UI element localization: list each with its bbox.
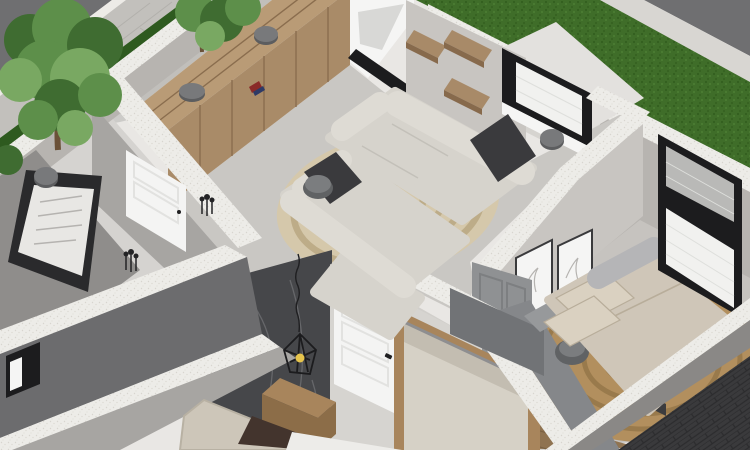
- tree-canopy: [57, 110, 93, 146]
- spot-lamp-body: [540, 129, 564, 147]
- light-bulb: [296, 354, 305, 363]
- plant-bud: [128, 249, 134, 255]
- window-pane: [10, 357, 22, 391]
- spot-lamp-body: [179, 83, 205, 99]
- plant-bud: [200, 197, 205, 202]
- plant-bud: [134, 254, 139, 259]
- spot-lamp-body: [34, 167, 58, 185]
- tree-canopy: [0, 58, 42, 102]
- door-handle: [177, 210, 181, 214]
- plant-bud: [204, 194, 210, 200]
- plant-bud: [210, 198, 215, 203]
- tree-canopy: [78, 73, 122, 117]
- spot-lamp-body: [254, 26, 278, 42]
- tree-canopy: [195, 21, 225, 51]
- ceiling-spot-lamp[interactable]: [179, 83, 205, 102]
- side-table-top: [305, 175, 331, 193]
- floorplan-canvas[interactable]: [0, 0, 750, 450]
- ceiling-spot-lamp[interactable]: [540, 129, 564, 150]
- ceiling-spot-lamp[interactable]: [254, 26, 278, 45]
- floorplan-viewport[interactable]: [0, 0, 750, 450]
- plant-bud: [124, 252, 129, 257]
- ceiling-spot-lamp[interactable]: [34, 167, 58, 188]
- tree-canopy: [18, 100, 58, 140]
